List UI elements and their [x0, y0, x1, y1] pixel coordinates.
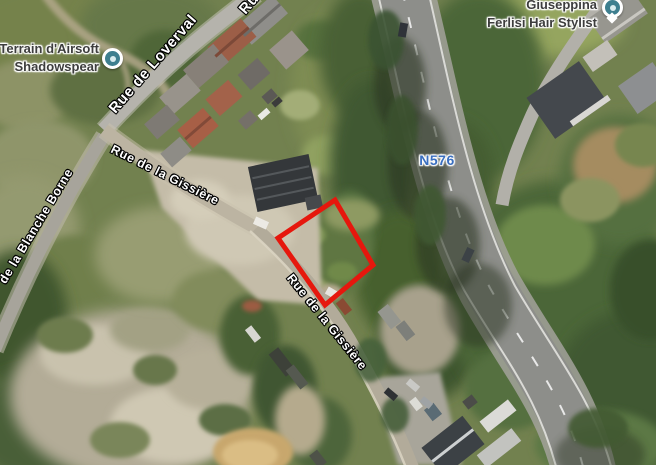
street-label-blanche-borne: de la Blanche Borne	[0, 166, 76, 286]
map-labels: Terrain d'Airsoft Shadowspear Giuseppina…	[0, 0, 656, 465]
street-label-rue-cut: Ru	[236, 0, 263, 18]
street-label-rue-de-la-gissiere-lower: Rue de la Gissière	[284, 271, 370, 372]
map-pin-inner	[610, 5, 616, 11]
poi-dot-icon[interactable]	[102, 48, 123, 69]
poi-label-giuseppina[interactable]: Giuseppina Ferlisi Hair Stylist	[487, 0, 597, 32]
poi-dot-inner	[110, 56, 116, 62]
route-shield-n576: N576	[419, 152, 454, 168]
map-canvas[interactable]: Terrain d'Airsoft Shadowspear Giuseppina…	[0, 0, 656, 465]
poi-label-line: Shadowspear	[0, 58, 99, 76]
poi-label-line: Giuseppina	[487, 0, 597, 14]
street-label-rue-de-la-gissiere-upper: Rue de la Gissière	[109, 142, 222, 208]
poi-label-line: Terrain d'Airsoft	[0, 40, 99, 58]
poi-label-terrain-airsoft[interactable]: Terrain d'Airsoft Shadowspear	[0, 40, 99, 76]
poi-label-line: Ferlisi Hair Stylist	[487, 14, 597, 32]
